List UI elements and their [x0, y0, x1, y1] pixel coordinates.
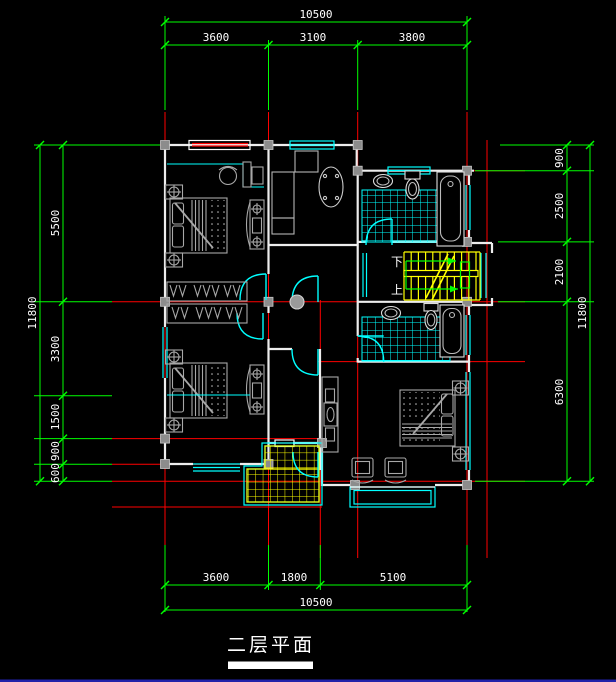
drawing-background	[0, 0, 616, 682]
svg-text:5500: 5500	[49, 210, 62, 237]
svg-text:下: 下	[391, 255, 403, 269]
svg-text:10500: 10500	[299, 8, 332, 21]
svg-text:3300: 3300	[49, 336, 62, 363]
svg-text:1800: 1800	[281, 571, 308, 584]
floor-plan-canvas: 1050036003100380036001800510010500118005…	[0, 0, 616, 682]
svg-text:3600: 3600	[203, 31, 230, 44]
svg-text:6300: 6300	[553, 379, 566, 406]
svg-text:2100: 2100	[553, 259, 566, 286]
cad-viewport: 1050036003100380036001800510010500118005…	[0, 0, 616, 682]
svg-text:3100: 3100	[300, 31, 327, 44]
svg-text:3600: 3600	[203, 571, 230, 584]
svg-text:600: 600	[49, 463, 62, 483]
svg-text:11800: 11800	[576, 296, 589, 329]
svg-text:3800: 3800	[399, 31, 426, 44]
svg-text:二层平面: 二层平面	[227, 634, 315, 656]
title-block: 二层平面	[227, 634, 315, 669]
svg-text:11800: 11800	[26, 296, 39, 329]
svg-text:2500: 2500	[553, 193, 566, 220]
svg-text:900: 900	[553, 148, 566, 168]
svg-text:900: 900	[49, 441, 62, 461]
svg-text:10500: 10500	[299, 596, 332, 609]
svg-text:1500: 1500	[49, 404, 62, 431]
svg-text:上: 上	[391, 283, 403, 297]
svg-text:5100: 5100	[380, 571, 407, 584]
